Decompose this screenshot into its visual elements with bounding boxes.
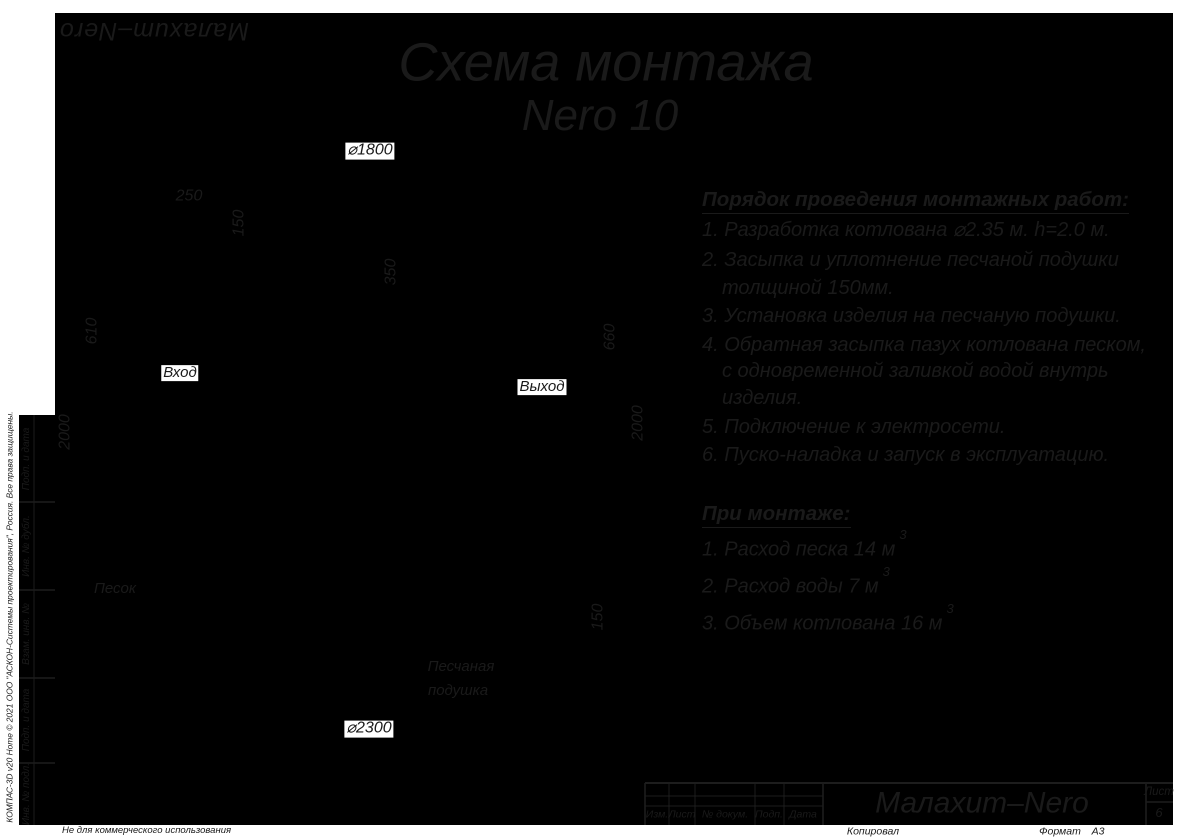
instruction-line: 5. Подключение к электросети.	[702, 417, 1005, 438]
dim-plate-depth: 350	[384, 259, 401, 286]
montage-header: При монтаже:	[702, 503, 851, 528]
stamp-vzam-inv: Взам. инв. №	[22, 603, 33, 665]
dim-cushion-thickness: 150	[591, 604, 608, 631]
tb-col-list: Лист	[668, 809, 695, 820]
cushion-label-line2: подушка	[428, 683, 488, 699]
tb-col-izm: Изм.	[646, 809, 668, 820]
montage-item: 1. Расход песка 14 м3	[702, 537, 907, 561]
dim-inlet-depth: 610	[85, 318, 102, 345]
montage-item-text: 2. Расход воды 7 м	[702, 576, 879, 598]
montage-item: 2. Расход воды 7 м3	[702, 574, 890, 598]
instructions-header: Порядок проведения монтажных работ:	[702, 189, 1129, 214]
tb-col-data: Дата	[789, 809, 817, 820]
instruction-line: 6. Пуско-наладка и запуск в эксплуатацию…	[702, 445, 1109, 466]
sand-label: Песок	[94, 581, 136, 597]
instruction-line: 1. Разработка котлована ⌀2.35 м. h=2.0 м…	[702, 220, 1110, 241]
cubic-superscript: 3	[946, 601, 953, 616]
dim-side-gap: 250	[176, 189, 203, 206]
cushion-label-line1: Песчаная	[428, 659, 495, 675]
page-title: Схема монтажа	[398, 35, 813, 92]
tb-sheet-label: Лист	[1144, 786, 1174, 798]
instruction-line: 2. Засыпка и уплотнение песчаной подушки	[702, 250, 1119, 271]
outlet-label: Выход	[517, 379, 566, 395]
stamp-inv-dubl: Инв. № дубл.	[22, 515, 33, 577]
dim-tank-diameter: ⌀1800	[345, 143, 394, 160]
montage-item-text: 1. Расход песка 14 м	[702, 539, 895, 561]
tb-company: Малахит–Nero	[875, 787, 1089, 819]
dim-pit-diameter: ⌀2300	[344, 721, 393, 738]
cubic-superscript: 3	[883, 564, 890, 579]
stamp-podp-data-2: Подп. и дата	[22, 689, 33, 752]
stamp-podp-data-1: Подп. и дата	[22, 428, 33, 491]
montage-item-text: 3. Объем котлована 16 м	[702, 613, 942, 635]
dim-pit-depth-right: 2000	[631, 405, 648, 441]
instruction-line: толщиной 150мм.	[722, 278, 894, 299]
tb-col-podp: Подп.	[755, 809, 783, 820]
page-subtitle: Nero 10	[522, 93, 679, 139]
stamp-inv-podl: Инв. № подл.	[22, 763, 33, 825]
tb-format-label: Формат	[1039, 826, 1081, 837]
non-commercial-note: Не для коммерческого использования	[62, 826, 231, 836]
tb-col-dokum: № докум.	[702, 809, 748, 820]
dim-pit-depth-left: 2000	[58, 414, 75, 450]
tb-copied: Копировал	[847, 826, 899, 837]
tb-sheet-number: 6	[1155, 806, 1162, 820]
vendor-copyright: КОМПАС-3D v20 Home © 2021 ООО "АСКОН-Сис…	[6, 411, 15, 822]
instruction-line: 3. Установка изделия на песчаную подушки…	[702, 306, 1121, 327]
drawing-sheet: Малахит–Nero Схема монтажа Nero 10 Поряд…	[0, 0, 1186, 839]
instruction-line: с одновременной заливкой водой внутрь	[722, 361, 1109, 382]
instruction-line: изделия.	[722, 388, 802, 409]
dim-lid-height: 150	[232, 210, 249, 237]
inlet-label: Вход	[161, 365, 198, 381]
instruction-line: 4. Обратная засыпка пазух котлована песк…	[702, 335, 1146, 356]
dim-outlet-depth: 660	[603, 324, 620, 351]
vendor-logo: Малахит–Nero	[59, 18, 249, 44]
montage-item: 3. Объем котлована 16 м3	[702, 611, 954, 635]
tb-format-value: А3	[1092, 826, 1105, 837]
cubic-superscript: 3	[899, 527, 906, 542]
